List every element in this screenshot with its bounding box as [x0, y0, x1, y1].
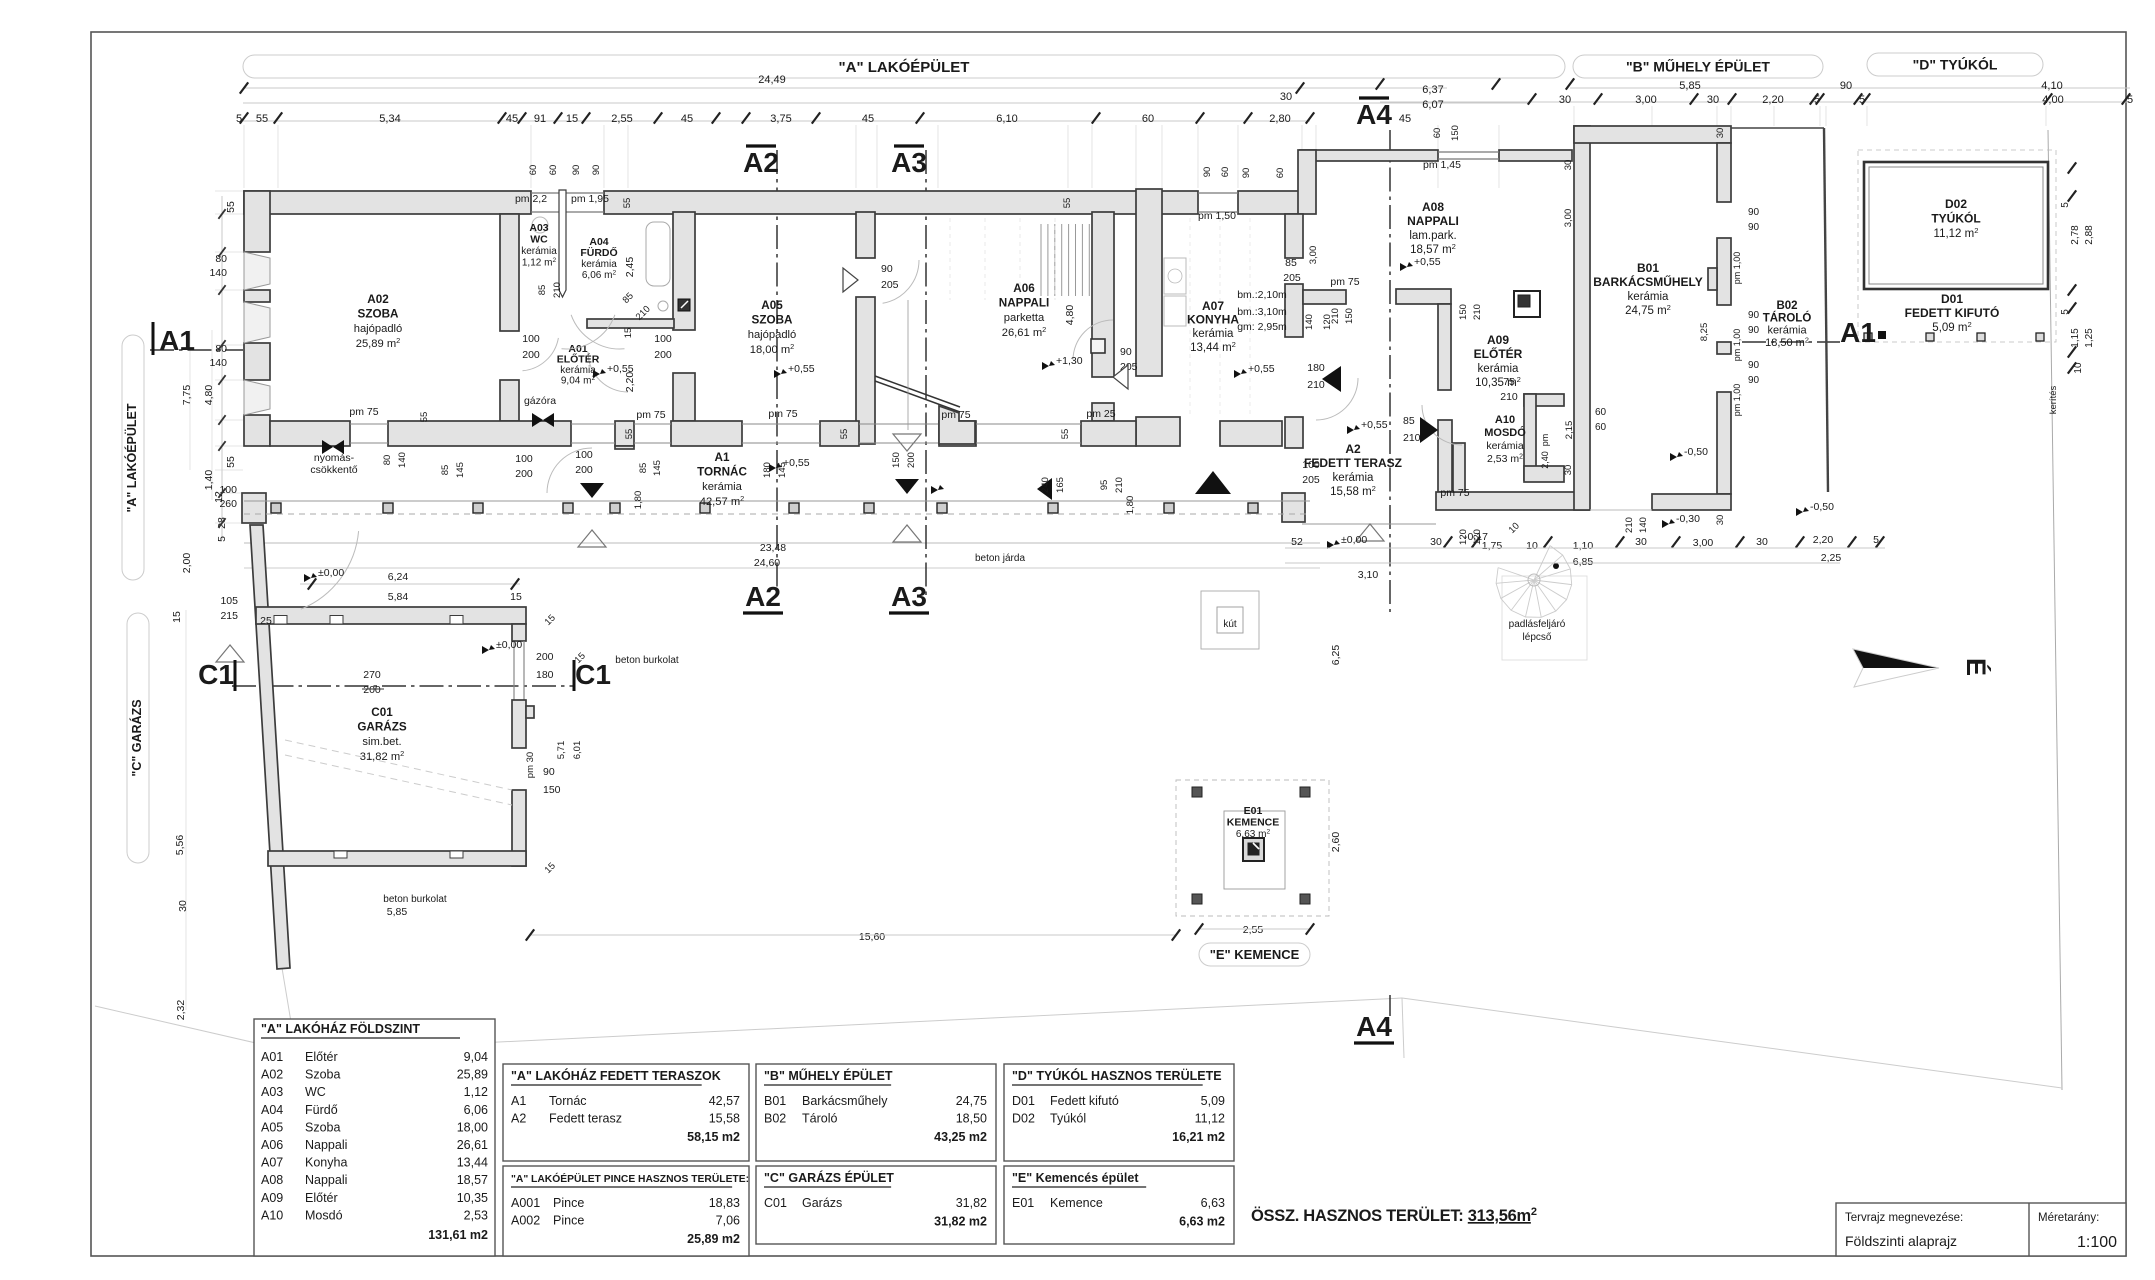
svg-text:A4: A4 — [1356, 99, 1392, 130]
svg-text:ÖSSZ. HASZNOS TERÜLET: 313,56m: ÖSSZ. HASZNOS TERÜLET: 313,56m2 — [1251, 1206, 1537, 1225]
svg-text:5,56: 5,56 — [174, 835, 186, 856]
svg-text:24,49: 24,49 — [758, 74, 786, 86]
svg-text:200: 200 — [654, 349, 672, 361]
svg-text:nyomás-: nyomás- — [314, 452, 355, 464]
svg-text:2,32: 2,32 — [175, 1000, 187, 1021]
svg-text:A09: A09 — [261, 1191, 283, 1205]
svg-text:25,89: 25,89 — [457, 1068, 488, 1082]
svg-text:30: 30 — [177, 900, 189, 912]
svg-text:gm: 2,95m: gm: 2,95m — [1237, 321, 1287, 333]
svg-text:pm 1,00: pm 1,00 — [1732, 252, 1742, 285]
svg-text:200: 200 — [536, 651, 554, 663]
svg-text:+0,55: +0,55 — [607, 363, 634, 375]
svg-text:3,00: 3,00 — [1635, 94, 1656, 106]
svg-text:C01: C01 — [371, 706, 393, 719]
svg-text:lam.park.: lam.park. — [1409, 230, 1456, 242]
svg-text:100: 100 — [522, 333, 540, 345]
svg-text:210: 210 — [1307, 379, 1325, 391]
svg-text:210: 210 — [1114, 477, 1125, 493]
svg-text:145: 145 — [455, 462, 466, 478]
svg-text:23,48: 23,48 — [760, 542, 786, 554]
svg-text:52: 52 — [1291, 536, 1303, 548]
svg-text:31,82: 31,82 — [956, 1196, 987, 1210]
svg-text:90: 90 — [1202, 167, 1213, 178]
svg-text:131,61 m2: 131,61 m2 — [428, 1228, 488, 1242]
svg-text:26,61: 26,61 — [457, 1138, 488, 1152]
svg-text:85: 85 — [1285, 257, 1297, 269]
svg-text:30: 30 — [1635, 536, 1647, 548]
svg-text:Tervrajz megnevezése:: Tervrajz megnevezése: — [1845, 1212, 1963, 1224]
svg-text:80: 80 — [382, 455, 393, 466]
svg-text:padlásfeljáró: padlásfeljáró — [1509, 619, 1566, 630]
svg-text:kerítés: kerítés — [2048, 385, 2059, 414]
svg-text:140: 140 — [209, 267, 227, 279]
svg-text:25,89 m2: 25,89 m2 — [356, 336, 401, 350]
svg-text:26,61 m2: 26,61 m2 — [1002, 325, 1047, 339]
svg-text:1,25: 1,25 — [2084, 328, 2095, 348]
svg-text:205: 205 — [881, 279, 899, 291]
svg-text:Fürdő: Fürdő — [305, 1103, 338, 1117]
svg-text:140: 140 — [1638, 517, 1649, 533]
svg-text:15: 15 — [566, 113, 578, 125]
svg-text:A03: A03 — [261, 1085, 283, 1099]
svg-text:30: 30 — [1756, 536, 1768, 548]
svg-text:45: 45 — [1399, 113, 1411, 125]
svg-text:Garázs: Garázs — [802, 1196, 842, 1210]
svg-text:200: 200 — [515, 468, 533, 480]
svg-text:5,71: 5,71 — [556, 741, 567, 760]
svg-text:"E" Kemencés épület: "E" Kemencés épület — [1012, 1171, 1139, 1185]
svg-text:A03: A03 — [529, 222, 548, 234]
svg-text:150: 150 — [543, 784, 561, 796]
svg-text:90: 90 — [1748, 222, 1760, 233]
svg-text:6,37: 6,37 — [1422, 84, 1443, 96]
svg-text:18,00: 18,00 — [457, 1120, 488, 1134]
svg-text:pm 75: pm 75 — [636, 409, 665, 421]
svg-text:5,09 m2: 5,09 m2 — [1932, 320, 1971, 334]
svg-text:205: 205 — [1302, 474, 1320, 486]
svg-text:55: 55 — [839, 429, 850, 440]
svg-text:2,78: 2,78 — [2070, 225, 2081, 245]
svg-text:A02: A02 — [261, 1068, 283, 1082]
svg-text:2,60: 2,60 — [1330, 832, 1342, 853]
svg-text:A04: A04 — [261, 1103, 283, 1117]
svg-text:A3: A3 — [891, 147, 927, 178]
svg-text:205: 205 — [1283, 272, 1301, 284]
svg-text:kerámia: kerámia — [521, 246, 557, 257]
svg-text:100: 100 — [575, 449, 593, 461]
svg-text:6,85: 6,85 — [1573, 556, 1594, 568]
svg-text:"A" LAKÓÉPÜLET: "A" LAKÓÉPÜLET — [124, 403, 139, 512]
svg-text:5,84: 5,84 — [388, 591, 409, 603]
svg-text:105: 105 — [220, 595, 238, 607]
svg-text:kerámia: kerámia — [1767, 325, 1807, 337]
svg-text:"C" GARÁZS: "C" GARÁZS — [129, 699, 144, 776]
svg-text:4,80: 4,80 — [203, 385, 215, 406]
svg-text:2,40: 2,40 — [1540, 451, 1550, 469]
svg-text:5,85: 5,85 — [1679, 80, 1700, 92]
svg-text:43,25 m2: 43,25 m2 — [934, 1130, 987, 1144]
svg-text:D01: D01 — [1012, 1094, 1035, 1108]
svg-text:18,57: 18,57 — [457, 1173, 488, 1187]
svg-text:lépcső: lépcső — [1523, 632, 1552, 643]
svg-text:1,12: 1,12 — [464, 1085, 488, 1099]
svg-text:A10: A10 — [1495, 414, 1515, 426]
svg-text:FÜRDŐ: FÜRDŐ — [580, 246, 617, 259]
svg-text:60: 60 — [1595, 407, 1607, 418]
svg-text:18,50: 18,50 — [956, 1112, 987, 1126]
svg-text:18,57 m2: 18,57 m2 — [1410, 242, 1456, 256]
svg-text:200: 200 — [575, 464, 593, 476]
svg-text:A08: A08 — [1422, 200, 1444, 214]
svg-text:A2: A2 — [1345, 442, 1361, 456]
svg-text:Szoba: Szoba — [305, 1068, 340, 1082]
svg-text:3,75: 3,75 — [770, 113, 791, 125]
svg-text:60: 60 — [548, 165, 559, 176]
svg-text:beton burkolat: beton burkolat — [615, 655, 679, 666]
svg-text:85: 85 — [537, 285, 548, 296]
svg-text:A3: A3 — [891, 581, 927, 612]
svg-text:215: 215 — [220, 610, 238, 622]
svg-text:Nappali: Nappali — [305, 1138, 347, 1152]
svg-text:15,58 m2: 15,58 m2 — [1330, 484, 1376, 498]
svg-text:D02: D02 — [1012, 1112, 1035, 1126]
svg-text:A1: A1 — [715, 451, 730, 464]
svg-text:A07: A07 — [1202, 299, 1224, 313]
svg-text:TORNÁC: TORNÁC — [697, 466, 747, 479]
svg-text:D02: D02 — [1945, 197, 1967, 211]
svg-text:210: 210 — [1624, 517, 1635, 533]
svg-text:pm 30: pm 30 — [525, 752, 536, 778]
svg-text:TYÚKÓL: TYÚKÓL — [1931, 211, 1980, 226]
svg-text:30: 30 — [1715, 128, 1726, 139]
svg-text:145: 145 — [652, 460, 663, 476]
svg-text:Pince: Pince — [553, 1214, 584, 1228]
svg-text:beton burkolat: beton burkolat — [383, 894, 447, 905]
svg-text:6,63: 6,63 — [1201, 1196, 1225, 1210]
svg-text:A07: A07 — [261, 1156, 283, 1170]
svg-text:3,00: 3,00 — [1308, 246, 1319, 265]
svg-text:C01: C01 — [764, 1196, 787, 1210]
svg-text:pm 1,95: pm 1,95 — [571, 193, 609, 205]
svg-text:2,20: 2,20 — [1813, 534, 1834, 546]
svg-text:6,06: 6,06 — [464, 1103, 488, 1117]
svg-text:11,12: 11,12 — [1195, 1112, 1225, 1126]
svg-text:90: 90 — [881, 263, 893, 275]
svg-text:-0,50: -0,50 — [1684, 446, 1708, 458]
svg-text:pm 1,00: pm 1,00 — [1732, 329, 1742, 362]
svg-text:2,15: 2,15 — [1564, 421, 1575, 440]
svg-text:kerámia: kerámia — [1628, 291, 1670, 303]
svg-text:150: 150 — [891, 452, 902, 468]
svg-text:FEDETT KIFUTÓ: FEDETT KIFUTÓ — [1905, 305, 2000, 320]
svg-text:2,20: 2,20 — [1762, 94, 1783, 106]
svg-text:parketta: parketta — [1004, 312, 1045, 324]
svg-text:2,53 m2: 2,53 m2 — [1487, 453, 1523, 465]
svg-text:2,55: 2,55 — [611, 113, 632, 125]
svg-text:A2: A2 — [511, 1112, 526, 1126]
svg-text:85: 85 — [440, 465, 451, 476]
svg-text:3,00: 3,00 — [1563, 209, 1574, 228]
svg-text:E01: E01 — [1244, 805, 1263, 817]
svg-text:"A" LAKÓÉPÜLET PINCE HASZNOS T: "A" LAKÓÉPÜLET PINCE HASZNOS TERÜLETE: — [511, 1172, 749, 1185]
svg-text:60: 60 — [528, 165, 539, 176]
svg-text:WC: WC — [305, 1085, 326, 1099]
svg-text:A002: A002 — [511, 1214, 540, 1228]
svg-text:260: 260 — [219, 498, 237, 510]
svg-text:"E" KEMENCE: "E" KEMENCE — [1210, 947, 1300, 962]
svg-text:"D" TYÚKÓL HASZNOS TERÜLETE: "D" TYÚKÓL HASZNOS TERÜLETE — [1012, 1068, 1222, 1083]
svg-text:1,40: 1,40 — [203, 470, 215, 491]
svg-text:1:100: 1:100 — [2077, 1234, 2117, 1251]
svg-text:±0,00: ±0,00 — [1341, 534, 1367, 546]
svg-text:60: 60 — [1595, 422, 1607, 433]
svg-text:2,45: 2,45 — [624, 257, 636, 278]
svg-text:"B" MŰHELY ÉPÜLET: "B" MŰHELY ÉPÜLET — [764, 1068, 893, 1083]
svg-text:pm 75: pm 75 — [768, 408, 797, 420]
svg-text:pm 2,2: pm 2,2 — [515, 193, 547, 205]
svg-text:GARÁZS: GARÁZS — [357, 721, 407, 734]
svg-text:15: 15 — [510, 591, 522, 603]
svg-text:4,00: 4,00 — [2042, 94, 2063, 106]
svg-text:±0,00: ±0,00 — [318, 567, 344, 579]
svg-text:Méretarány:: Méretarány: — [2038, 1212, 2099, 1224]
svg-text:58,15 m2: 58,15 m2 — [687, 1130, 740, 1144]
svg-text:15: 15 — [171, 611, 183, 623]
svg-text:90: 90 — [1748, 325, 1760, 336]
svg-text:45: 45 — [681, 113, 693, 125]
svg-text:pm 25: pm 25 — [1086, 408, 1115, 420]
svg-text:31,82 m2: 31,82 m2 — [360, 749, 405, 763]
svg-text:A09: A09 — [1487, 333, 1509, 347]
svg-text:120: 120 — [1458, 529, 1469, 545]
svg-text:150: 150 — [1344, 308, 1355, 324]
svg-text:hajópadló: hajópadló — [748, 329, 797, 341]
svg-text:210: 210 — [1403, 432, 1421, 444]
svg-text:15: 15 — [623, 328, 634, 339]
svg-text:kerámia: kerámia — [702, 481, 743, 493]
svg-text:42,57 m2: 42,57 m2 — [700, 494, 745, 508]
svg-text:Előtér: Előtér — [305, 1191, 338, 1205]
svg-text:Kemence: Kemence — [1050, 1196, 1103, 1210]
svg-text:A05: A05 — [261, 1120, 283, 1134]
svg-text:100: 100 — [654, 333, 672, 345]
svg-text:Tároló: Tároló — [802, 1112, 837, 1126]
svg-text:1,80: 1,80 — [633, 491, 644, 510]
svg-text:pm 1,50: pm 1,50 — [1198, 210, 1236, 222]
svg-text:80: 80 — [215, 253, 227, 265]
svg-text:200: 200 — [522, 349, 540, 361]
svg-text:5: 5 — [216, 536, 228, 542]
svg-text:30: 30 — [1563, 160, 1574, 171]
svg-text:55: 55 — [419, 412, 430, 423]
svg-text:+0,55: +0,55 — [1414, 256, 1441, 268]
svg-text:±0,00: ±0,00 — [496, 639, 522, 651]
svg-text:6,10: 6,10 — [996, 113, 1017, 125]
svg-text:15,60: 15,60 — [859, 931, 885, 943]
svg-text:240: 240 — [1040, 477, 1051, 493]
svg-text:KONYHA: KONYHA — [1187, 313, 1239, 327]
svg-text:2,80: 2,80 — [1269, 113, 1290, 125]
svg-text:WC: WC — [530, 234, 548, 246]
svg-text:210: 210 — [552, 282, 563, 298]
svg-text:1,75: 1,75 — [1482, 540, 1503, 552]
svg-text:180: 180 — [1307, 362, 1325, 374]
svg-text:60: 60 — [1142, 113, 1154, 125]
svg-text:TÁROLÓ: TÁROLÓ — [1763, 311, 1812, 324]
svg-text:Nappali: Nappali — [305, 1173, 347, 1187]
svg-text:8,25: 8,25 — [1699, 323, 1710, 342]
svg-text:55: 55 — [225, 201, 237, 213]
svg-text:55: 55 — [1060, 429, 1071, 440]
svg-text:90: 90 — [1748, 207, 1760, 218]
svg-text:85: 85 — [1403, 415, 1415, 427]
svg-text:A2: A2 — [745, 581, 781, 612]
svg-text:kerámia: kerámia — [1193, 328, 1235, 340]
svg-text:145: 145 — [777, 462, 788, 478]
svg-text:kerámia: kerámia — [1333, 472, 1375, 484]
svg-text:Fedett terasz: Fedett terasz — [549, 1112, 622, 1126]
svg-text:3,00: 3,00 — [1693, 537, 1714, 549]
svg-text:7,75: 7,75 — [181, 385, 193, 406]
svg-text:16,21 m2: 16,21 m2 — [1172, 1130, 1225, 1144]
svg-text:kerámia: kerámia — [1478, 363, 1520, 375]
svg-text:6,63 m2: 6,63 m2 — [1236, 829, 1271, 840]
svg-text:100: 100 — [1302, 459, 1320, 471]
svg-text:+1,30: +1,30 — [1056, 355, 1083, 367]
svg-text:165: 165 — [1055, 477, 1066, 493]
svg-text:A1: A1 — [1840, 317, 1876, 348]
svg-text:140: 140 — [397, 452, 408, 468]
svg-text:30: 30 — [1430, 536, 1442, 548]
svg-text:6,01: 6,01 — [572, 741, 583, 760]
svg-text:A1: A1 — [511, 1094, 526, 1108]
svg-text:pm 75: pm 75 — [1330, 276, 1359, 288]
svg-text:MOSDÓ: MOSDÓ — [1484, 426, 1526, 439]
svg-text:13,44 m2: 13,44 m2 — [1190, 340, 1236, 354]
svg-text:90: 90 — [1241, 168, 1252, 179]
svg-text:kerámia: kerámia — [581, 259, 617, 270]
svg-text:-0,50: -0,50 — [1810, 501, 1834, 513]
svg-text:-0,30: -0,30 — [1676, 513, 1700, 525]
svg-text:90: 90 — [591, 165, 602, 176]
svg-text:2,88: 2,88 — [2084, 225, 2095, 245]
svg-text:15,58: 15,58 — [709, 1112, 740, 1126]
svg-text:45: 45 — [506, 113, 518, 125]
svg-text:B02: B02 — [1776, 300, 1797, 312]
svg-text:90: 90 — [571, 165, 582, 176]
svg-text:3,10: 3,10 — [1358, 569, 1379, 581]
svg-text:18,83: 18,83 — [709, 1196, 740, 1210]
svg-text:ELŐTÉR: ELŐTÉR — [1474, 346, 1523, 361]
svg-text:csökkentő: csökkentő — [310, 464, 357, 476]
svg-text:Konyha: Konyha — [305, 1156, 347, 1170]
svg-text:120: 120 — [1472, 529, 1483, 545]
svg-text:A4: A4 — [1356, 1011, 1392, 1042]
svg-text:B01: B01 — [1637, 261, 1659, 275]
svg-text:A02: A02 — [367, 293, 389, 306]
svg-text:210: 210 — [1472, 304, 1483, 320]
svg-text:55: 55 — [1062, 198, 1073, 209]
svg-text:A2: A2 — [743, 147, 779, 178]
svg-text:13,44: 13,44 — [457, 1156, 488, 1170]
svg-text:24,60: 24,60 — [754, 557, 780, 569]
svg-text:180: 180 — [762, 462, 773, 478]
svg-text:60: 60 — [1220, 167, 1231, 178]
svg-text:30: 30 — [1707, 94, 1719, 106]
svg-text:9,04: 9,04 — [464, 1050, 488, 1064]
svg-text:95: 95 — [1099, 480, 1110, 491]
svg-text:140: 140 — [209, 357, 227, 369]
svg-text:+0,55: +0,55 — [1361, 419, 1388, 431]
svg-text:pm: pm — [1540, 434, 1550, 447]
svg-text:25,89 m2: 25,89 m2 — [687, 1232, 740, 1246]
svg-text:90: 90 — [543, 766, 555, 778]
svg-text:90: 90 — [1748, 310, 1760, 321]
svg-text:25: 25 — [260, 615, 272, 627]
svg-text:SZOBA: SZOBA — [752, 314, 793, 327]
svg-text:Földszinti alaprajz: Földszinti alaprajz — [1845, 1233, 1957, 1249]
svg-text:42,57: 42,57 — [709, 1094, 740, 1108]
svg-text:7,06: 7,06 — [716, 1214, 740, 1228]
svg-text:B02: B02 — [764, 1112, 786, 1126]
svg-text:hajópadló: hajópadló — [354, 323, 403, 335]
svg-text:KEMENCE: KEMENCE — [1227, 817, 1280, 829]
svg-text:6,06 m2: 6,06 m2 — [582, 270, 617, 281]
svg-text:55: 55 — [225, 456, 237, 468]
svg-text:E01: E01 — [1012, 1196, 1034, 1210]
svg-text:Előtér: Előtér — [305, 1050, 338, 1064]
svg-text:"D" TYÚKÓL: "D" TYÚKÓL — [1913, 55, 1998, 72]
svg-text:BARKÁCSMŰHELY: BARKÁCSMŰHELY — [1593, 274, 1703, 289]
svg-text:SZOBA: SZOBA — [358, 308, 399, 321]
svg-text:55: 55 — [624, 429, 635, 440]
svg-text:sim.bet.: sim.bet. — [362, 736, 401, 748]
svg-text:31,82 m2: 31,82 m2 — [934, 1215, 987, 1229]
svg-text:90: 90 — [1120, 346, 1132, 358]
svg-text:11,12 m2: 11,12 m2 — [1934, 226, 1979, 240]
svg-text:Pince: Pince — [553, 1196, 584, 1210]
svg-text:B01: B01 — [764, 1094, 786, 1108]
svg-text:A08: A08 — [261, 1173, 283, 1187]
svg-text:É: É — [1961, 658, 1992, 676]
svg-text:"A" LAKÓHÁZ FEDETT TERASZOK: "A" LAKÓHÁZ FEDETT TERASZOK — [511, 1068, 721, 1083]
svg-text:210: 210 — [1500, 391, 1518, 403]
svg-text:6,07: 6,07 — [1422, 99, 1443, 111]
svg-text:6,63 m2: 6,63 m2 — [1179, 1215, 1225, 1229]
svg-text:9,04 m2: 9,04 m2 — [561, 375, 596, 386]
svg-text:10,35: 10,35 — [457, 1191, 488, 1205]
svg-text:18,50 m2: 18,50 m2 — [1765, 335, 1809, 349]
svg-text:A06: A06 — [1013, 282, 1035, 295]
svg-text:ELŐTÉR: ELŐTÉR — [557, 353, 600, 366]
svg-text:"C" GARÁZS ÉPÜLET: "C" GARÁZS ÉPÜLET — [764, 1170, 894, 1185]
svg-text:"A" LAKÓÉPÜLET: "A" LAKÓÉPÜLET — [839, 58, 970, 76]
svg-text:1,10: 1,10 — [1573, 540, 1594, 552]
svg-text:60: 60 — [1275, 168, 1286, 179]
svg-text:NAPPALI: NAPPALI — [1407, 214, 1459, 228]
svg-text:1,80: 1,80 — [1125, 496, 1136, 515]
svg-text:A05: A05 — [761, 299, 783, 312]
svg-text:180: 180 — [536, 669, 554, 681]
svg-text:pm 75: pm 75 — [349, 406, 378, 418]
svg-text:D01: D01 — [1941, 292, 1963, 306]
svg-text:60: 60 — [1432, 128, 1443, 139]
svg-text:45: 45 — [862, 113, 874, 125]
svg-text:Tornác: Tornác — [549, 1094, 587, 1108]
svg-text:200: 200 — [363, 684, 381, 696]
svg-text:200: 200 — [906, 452, 917, 468]
